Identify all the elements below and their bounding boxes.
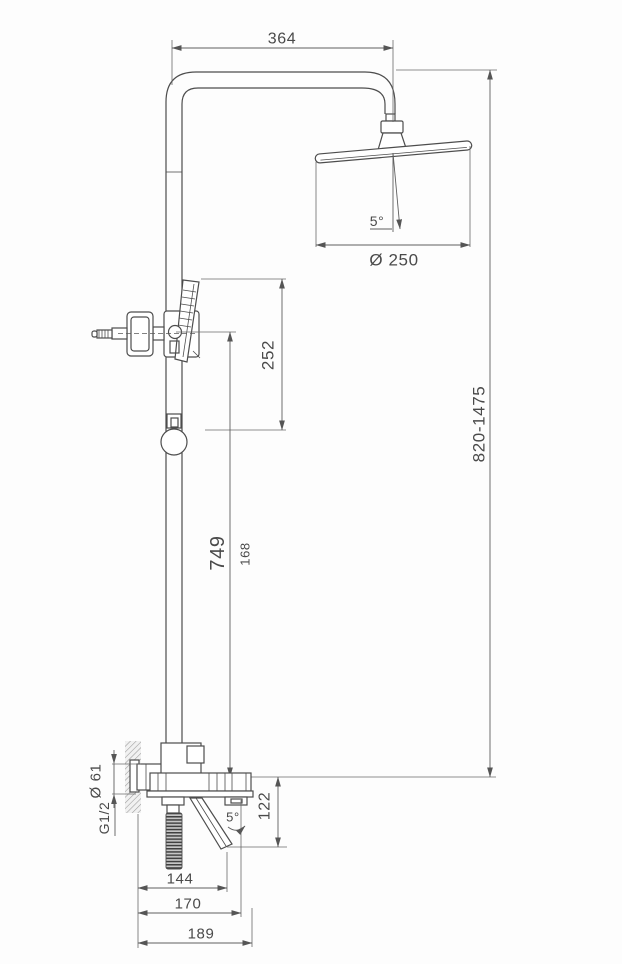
spout-outlet-housing [225, 797, 247, 805]
dim-reach-near-label: 144 [167, 871, 194, 888]
hand-shower-assembly [164, 280, 200, 362]
hose-ball-joint [161, 429, 187, 455]
knob-tip [92, 331, 97, 337]
head-neck [386, 114, 395, 121]
mixer-valve-body [130, 743, 253, 805]
dim-thread-size-label: G1/2 [96, 802, 112, 835]
dimension-arm-reach: 364 [172, 31, 393, 123]
dim-head-angle-label: 5° [370, 213, 385, 229]
dim-reach-far-label: 189 [188, 926, 215, 943]
dim-riser-section-label: 168 [238, 542, 253, 566]
dim-spout-drop-label: 122 [257, 792, 274, 821]
hose-ribbed-section [166, 813, 182, 869]
hose-nut [162, 797, 184, 805]
spout-angle-annotation: 5° [226, 800, 245, 917]
dimension-slide-section: 252 [201, 279, 286, 430]
dim-reach-mid-label: 170 [175, 896, 202, 913]
dim-spout-angle-label: 5° [226, 810, 240, 825]
valve-handle [187, 746, 204, 763]
dim-flange-diameter-label: Ø 61 [88, 764, 105, 799]
dim-height-range-label: 820-1475 [470, 386, 489, 463]
shower-hose [162, 797, 184, 869]
hose-collar [167, 805, 179, 813]
overhead-angle-annotation: 5° [370, 153, 400, 232]
dim-head-diameter-label: Ø 250 [369, 251, 418, 270]
slide-ball [161, 414, 187, 455]
dim-slide-section-label: 252 [259, 340, 278, 370]
dim-arm-reach-label: 364 [268, 31, 297, 48]
head-nut [381, 121, 403, 133]
mixer-barrel [150, 773, 251, 791]
spout-plate [147, 791, 253, 797]
dim-riser-height-label: 749 [207, 535, 229, 570]
technical-drawing-page: 5° Ø 250 364 820-1475 [0, 0, 622, 964]
dimension-height-range: 820-1475 [205, 70, 497, 777]
shower-column-pipe [166, 72, 395, 743]
dimension-riser-height: 749 168 [176, 332, 253, 777]
thread-annotation: G1/2 [96, 801, 115, 836]
shower-system-diagram: 5° Ø 250 364 820-1475 [0, 0, 622, 964]
dimension-spout-reach: 144 170 189 [138, 814, 252, 948]
